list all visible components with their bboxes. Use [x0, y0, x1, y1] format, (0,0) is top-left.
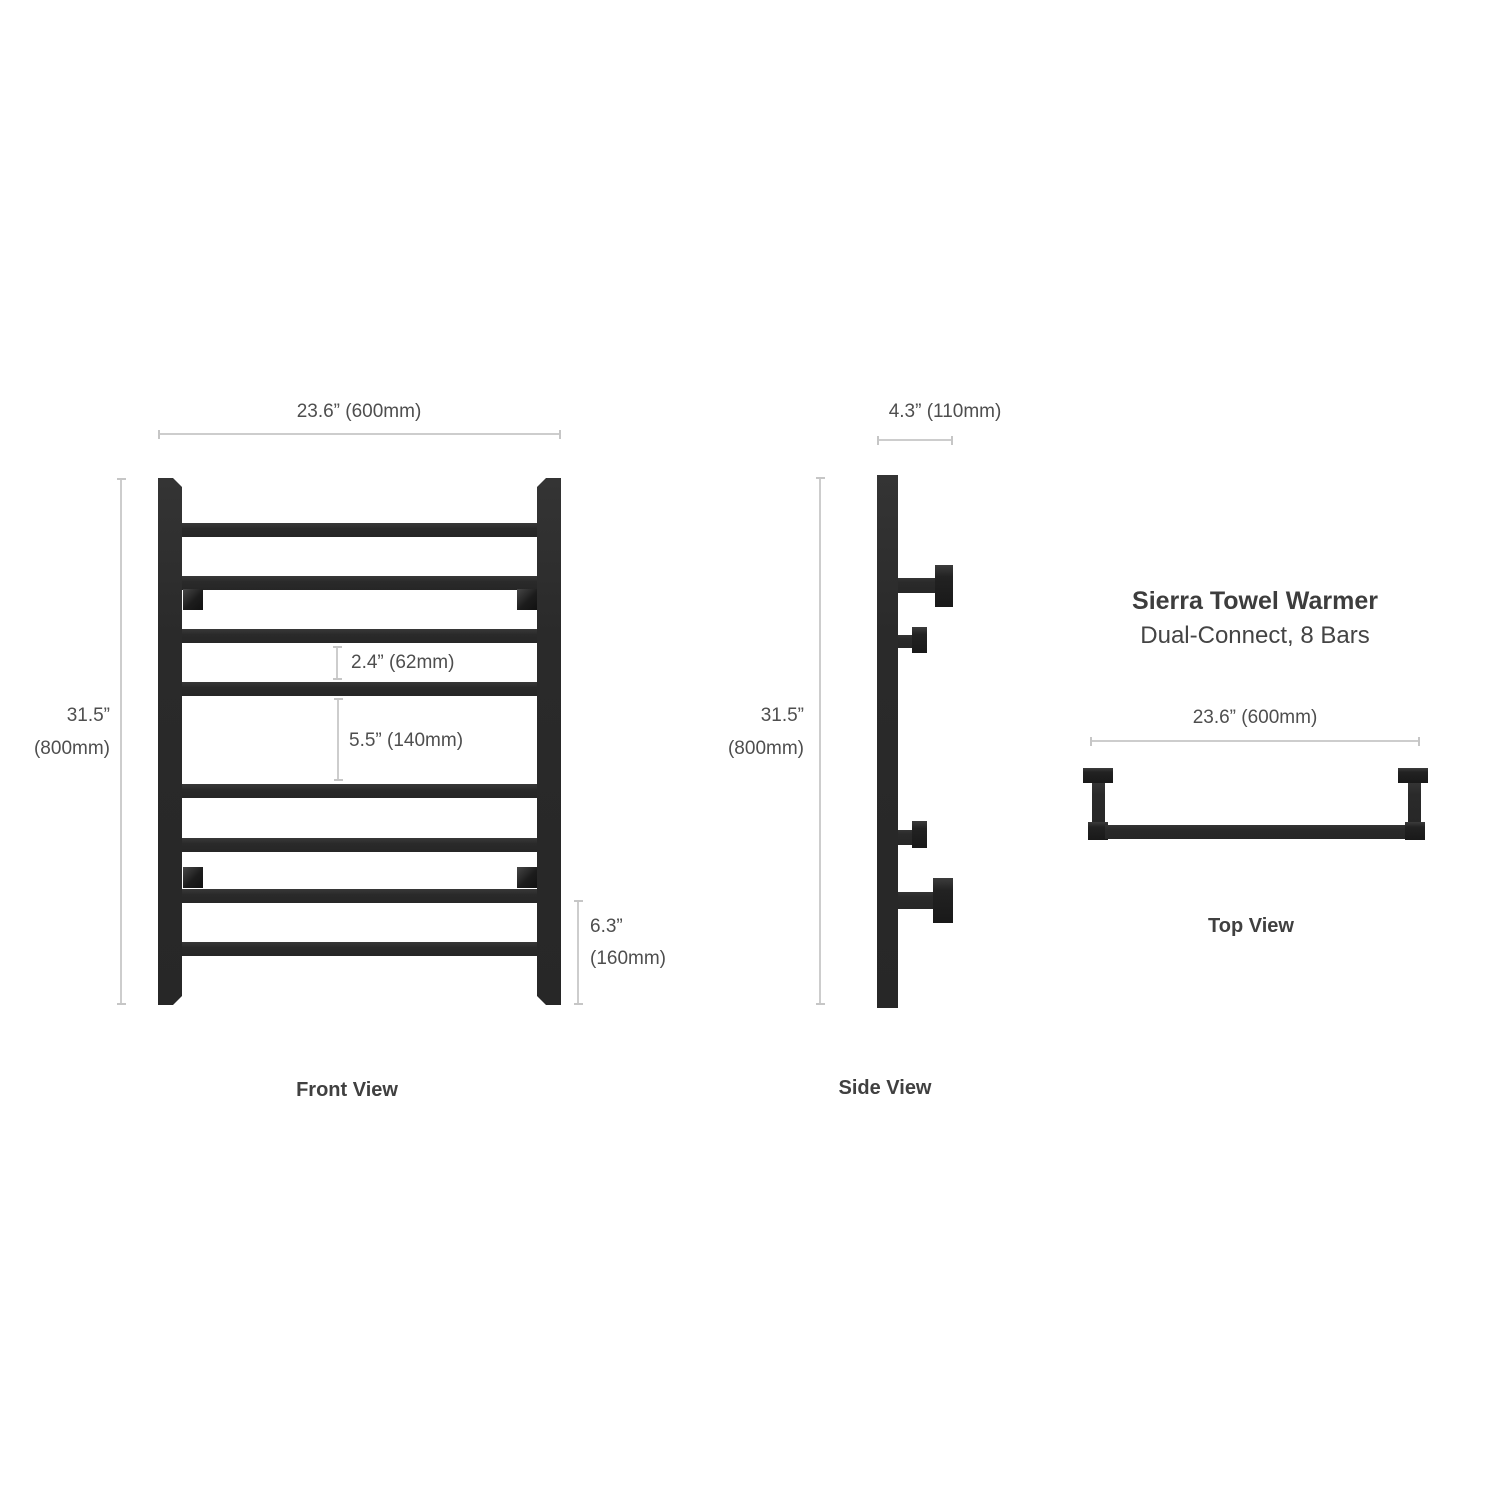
top-bracket-stem-left: [1092, 783, 1105, 823]
side-depth-dim-tick-right: [951, 436, 953, 445]
front-bargap-dim-label: 2.4” (62mm): [351, 653, 454, 672]
front-bottom-dim-line: [577, 900, 579, 1005]
side-post: [877, 475, 898, 1008]
front-bargap-dim-line: [336, 646, 338, 680]
front-bar-1: [182, 523, 537, 537]
front-sectiongap-dim-line: [337, 698, 339, 781]
front-sectiongap-dim-tick-top: [334, 698, 343, 700]
product-subtitle: Dual-Connect, 8 Bars: [1055, 624, 1455, 648]
front-width-dim-tick-left: [158, 430, 160, 439]
front-view-label: Front View: [247, 1080, 447, 1100]
side-bracket-knob-top-large: [935, 565, 953, 607]
front-sectiongap-dim-label: 5.5” (140mm): [349, 731, 463, 750]
side-height-dim-tick-bottom: [816, 1003, 825, 1005]
top-width-dim-label: 23.6” (600mm): [1105, 708, 1405, 727]
top-bracket-stem-right: [1408, 783, 1421, 823]
front-height-dim-tick-bottom: [117, 1003, 126, 1005]
top-bar: [1105, 825, 1410, 839]
side-height-dim-label-mm: (800mm): [706, 739, 804, 758]
side-bracket-knob-top-small: [912, 627, 927, 653]
side-depth-dim-label: 4.3” (110mm): [845, 402, 1045, 421]
side-bracket-knob-bottom-large: [933, 878, 953, 923]
front-bottom-dim-label-mm: (160mm): [590, 949, 666, 968]
side-height-dim-line: [819, 477, 821, 1005]
side-height-dim-tick-top: [816, 477, 825, 479]
front-bar-6: [182, 838, 537, 852]
side-view-label: Side View: [785, 1078, 985, 1098]
front-bar-8: [182, 942, 537, 956]
side-depth-dim-line: [877, 439, 953, 441]
front-sectiongap-dim-tick-bottom: [334, 779, 343, 781]
top-width-dim-line: [1090, 740, 1420, 742]
product-title: Sierra Towel Warmer: [1055, 589, 1455, 614]
top-width-dim-tick-left: [1090, 737, 1092, 746]
front-mount-bracket-bottom-right: [517, 867, 537, 888]
front-mount-bracket-top-right: [517, 589, 537, 610]
front-height-dim-label-in: 31.5”: [12, 706, 110, 725]
front-mount-bracket-bottom-left: [183, 867, 203, 888]
front-height-dim-line: [120, 478, 122, 1005]
front-bar-2: [182, 576, 537, 590]
front-height-dim-label-mm: (800mm): [12, 739, 110, 758]
side-bracket-arm-bottom-large: [898, 892, 934, 909]
front-mount-bracket-top-left: [183, 589, 203, 610]
front-bottom-dim-label-in: 6.3”: [590, 917, 623, 936]
front-post-right: [537, 478, 561, 1005]
front-width-dim-label: 23.6” (600mm): [209, 402, 509, 421]
front-bar-5: [182, 784, 537, 798]
front-bottom-dim-tick-bottom: [574, 1003, 583, 1005]
front-post-left: [158, 478, 182, 1005]
diagram-canvas: 23.6” (600mm) 31.5” (800mm) 2.4” (62mm): [0, 0, 1500, 1500]
front-bargap-dim-tick-bottom: [333, 678, 342, 680]
side-bracket-knob-bottom-small: [912, 821, 927, 848]
front-height-dim-tick-top: [117, 478, 126, 480]
top-bracket-foot-right: [1405, 822, 1425, 840]
front-bar-4: [182, 682, 537, 696]
front-width-dim-line: [158, 433, 561, 435]
front-bar-7: [182, 889, 537, 903]
front-bottom-dim-tick-top: [574, 900, 583, 902]
side-depth-dim-tick-left: [877, 436, 879, 445]
top-view-label: Top View: [1151, 916, 1351, 936]
top-bracket-cap-right: [1398, 768, 1428, 783]
top-bracket-cap-left: [1083, 768, 1113, 783]
front-bargap-dim-tick-top: [333, 646, 342, 648]
front-width-dim-tick-right: [559, 430, 561, 439]
top-width-dim-tick-right: [1418, 737, 1420, 746]
side-bracket-arm-top-large: [898, 578, 937, 593]
front-bar-3: [182, 629, 537, 643]
side-height-dim-label-in: 31.5”: [706, 706, 804, 725]
